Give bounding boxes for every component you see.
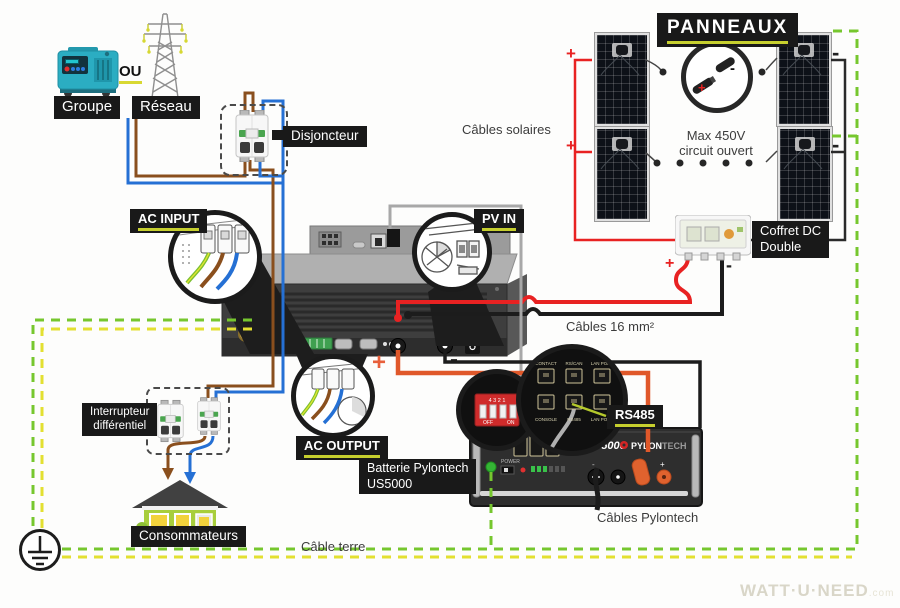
cables-solaires-label: Câbles solaires	[462, 122, 551, 137]
panel-plus-sign: +	[566, 136, 576, 156]
coffret-plus-sign: +	[665, 255, 674, 273]
ou-label: OU	[119, 63, 142, 84]
batterie-label: Batterie Pylontech US5000	[359, 459, 476, 494]
wattuneed-logo: WATT·U·NEED.com	[740, 581, 894, 601]
ac-output-label: AC OUTPUT	[296, 436, 388, 460]
interrupteur-differentiel-label: Interrupteur différentiel	[82, 403, 157, 436]
rs485-pointer	[0, 0, 900, 608]
panel-minus-sign: -	[832, 132, 839, 158]
cables-pylontech-label: Câbles Pylontech	[597, 510, 698, 525]
inverter-minus-sign: -	[450, 346, 458, 374]
ac-input-label: AC INPUT	[130, 209, 207, 233]
coffret-minus-sign: -	[726, 255, 732, 276]
coffret-dc-label: Coffret DC Double	[752, 221, 829, 258]
consommateurs-label: Consommateurs	[131, 526, 246, 547]
wiring-diagram: US5000 PYLON TECH POWER -	[0, 0, 900, 608]
inverter-plus-sign: +	[372, 349, 386, 377]
panneaux-title: PANNEAUX	[657, 13, 798, 47]
cable-terre-label: Câble terre	[301, 539, 365, 554]
rs485-label: RS485	[607, 405, 663, 429]
reseau-label: Réseau	[132, 96, 200, 119]
pv-in-label: PV IN	[474, 209, 524, 233]
disjoncteur-label: Disjoncteur	[283, 126, 367, 147]
cables-16mm-label: Câbles 16 mm²	[566, 319, 654, 334]
panel-minus-sign: -	[832, 40, 839, 66]
panel-plus-sign: +	[566, 44, 576, 64]
groupe-label: Groupe	[54, 96, 120, 119]
max-voltage-label: Max 450V circuit ouvert	[668, 128, 764, 158]
